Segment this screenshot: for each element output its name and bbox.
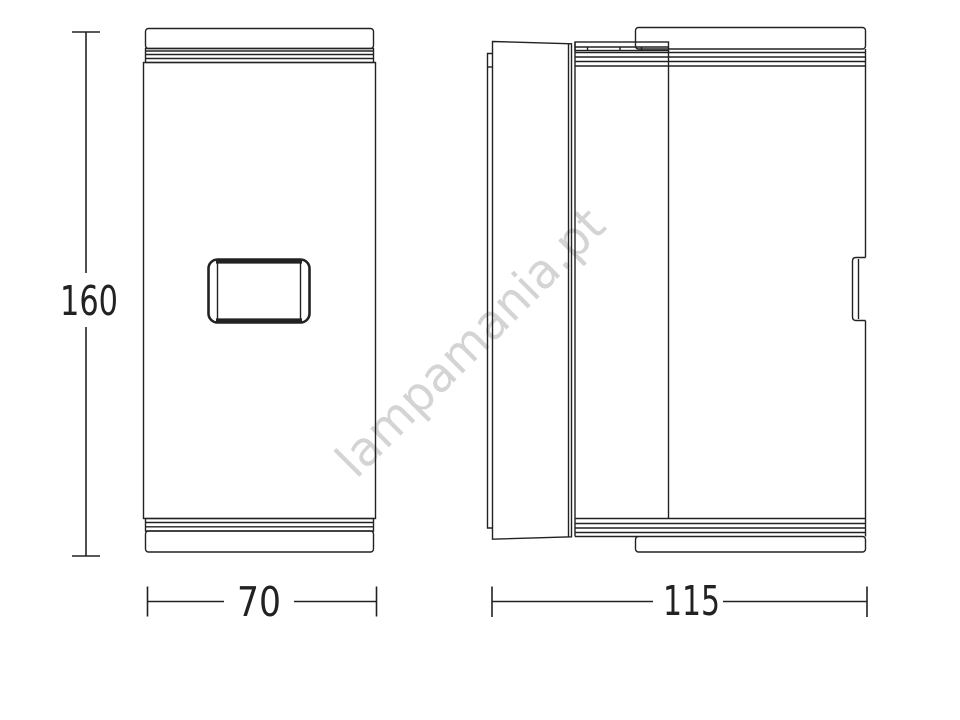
- front-top-ribs: [146, 49, 374, 63]
- side-body: [669, 49, 866, 537]
- latch-clip: [853, 258, 866, 321]
- front-bottom-ribs: [146, 519, 374, 532]
- sensor-window: [209, 260, 310, 323]
- watermark: lampamania.pt: [325, 197, 616, 488]
- width-dimension-label: 70: [237, 578, 281, 626]
- width-dimension: 70: [148, 578, 377, 626]
- side-top-ribs: [575, 53, 866, 67]
- front-top-cap: [146, 29, 374, 49]
- front-view: [144, 29, 376, 553]
- height-dimension-label: 160: [60, 277, 118, 325]
- depth-dimension: 115: [492, 577, 867, 625]
- technical-drawing: lampamania.pt: [0, 0, 960, 720]
- depth-dimension-label: 115: [663, 577, 720, 625]
- side-bottom-ribs: [575, 519, 866, 537]
- height-dimension: 160: [60, 32, 118, 556]
- front-bottom-cap: [146, 531, 374, 552]
- side-top-cap: [636, 28, 866, 50]
- dimension-drawing-page: lampamania.pt: [0, 0, 960, 720]
- side-bottom-cap: [636, 537, 866, 553]
